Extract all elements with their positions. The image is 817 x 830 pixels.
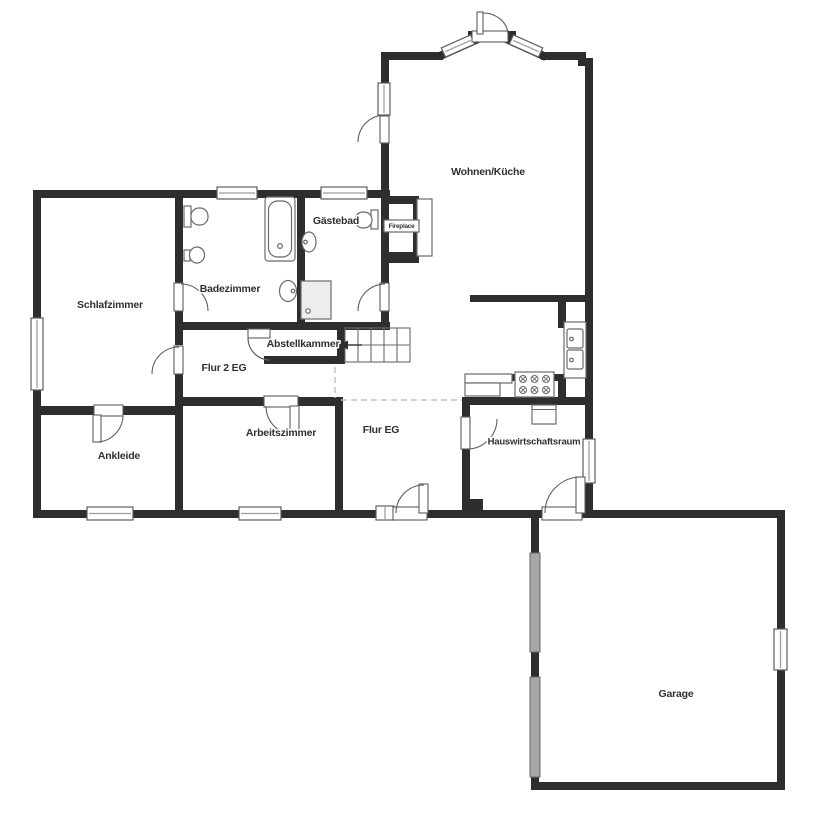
window: [378, 83, 390, 115]
window: [774, 629, 787, 670]
room-label-hauswirtschaftsraum: Hauswirtschaftsraum: [488, 437, 581, 448]
garage-door-panel: [530, 553, 540, 652]
washer-icon: [532, 405, 556, 424]
shower-icon: [301, 281, 331, 319]
room-label-schlafzimmer: Schlafzimmer: [77, 299, 143, 311]
window: [239, 507, 281, 520]
room-label-fireplace: Fireplace: [389, 223, 416, 230]
window: [509, 35, 542, 57]
stove-icon: [515, 372, 554, 397]
door: [542, 477, 585, 520]
walls: [33, 31, 785, 790]
staircase: [338, 328, 410, 362]
room-label-flur-eg: Flur EG: [363, 424, 400, 436]
windows: [31, 35, 787, 670]
sink-icon: [302, 232, 316, 252]
floor-plan-canvas: Wohnen/Küche Gästebad Fireplace Badezimm…: [0, 0, 817, 830]
toilet-icon: [184, 206, 208, 227]
door: [472, 12, 508, 42]
room-label-flur-2-eg: Flur 2 EG: [202, 362, 247, 374]
window: [87, 507, 133, 520]
room-label-arbeitszimmer: Arbeitszimmer: [246, 427, 316, 439]
kitchen-sink-icon: [564, 322, 586, 378]
room-label-badezimmer: Badezimmer: [200, 283, 261, 295]
floor-plan: Wohnen/Küche Gästebad Fireplace Badezimm…: [0, 0, 817, 830]
window: [321, 187, 367, 199]
window: [31, 318, 43, 390]
garage-door-panel: [530, 677, 540, 777]
door: [393, 484, 428, 520]
window: [441, 35, 474, 57]
room-label-wohnen-kueche: Wohnen/Küche: [451, 166, 525, 178]
door: [93, 405, 123, 442]
room-label-garage: Garage: [659, 688, 694, 700]
window: [376, 506, 394, 520]
bathtub-icon: [265, 197, 295, 261]
door: [358, 283, 389, 311]
kitchen-counter: [465, 374, 512, 396]
window: [217, 187, 257, 199]
room-label-gaestebad: Gästebad: [313, 215, 359, 227]
bidet-icon: [184, 247, 205, 263]
dashed-boundaries: [335, 367, 462, 400]
door: [358, 115, 389, 143]
room-label-ankleide: Ankleide: [98, 450, 141, 462]
window: [583, 439, 595, 483]
room-label-abstellkammer: Abstellkammer: [267, 338, 340, 350]
door: [152, 346, 183, 374]
sink-icon: [280, 281, 297, 302]
